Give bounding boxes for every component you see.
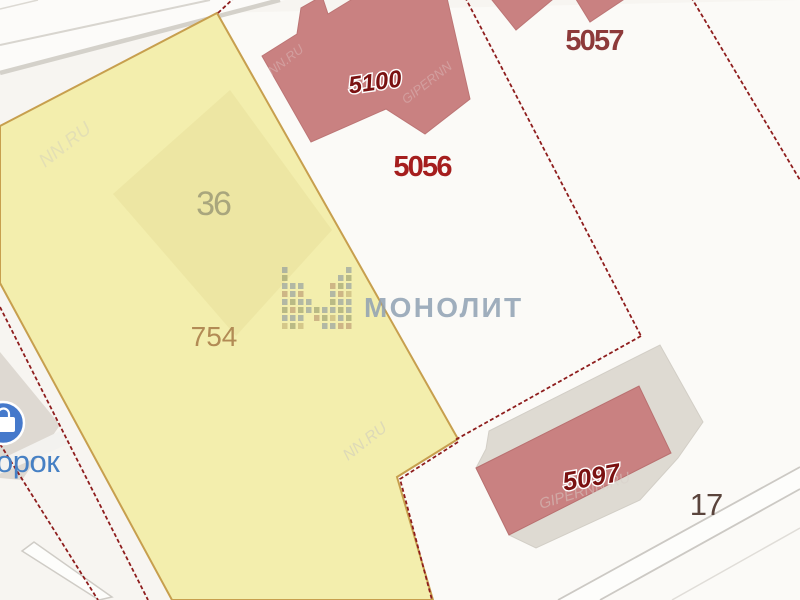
svg-text:орок: орок bbox=[0, 444, 60, 479]
svg-text:36: 36 bbox=[196, 185, 231, 223]
svg-text:5057: 5057 bbox=[565, 25, 623, 57]
svg-text:754: 754 bbox=[191, 321, 238, 352]
svg-text:17: 17 bbox=[690, 487, 722, 522]
svg-text:МОНОЛИТ: МОНОЛИТ bbox=[364, 292, 523, 323]
svg-text:5056: 5056 bbox=[393, 151, 452, 183]
